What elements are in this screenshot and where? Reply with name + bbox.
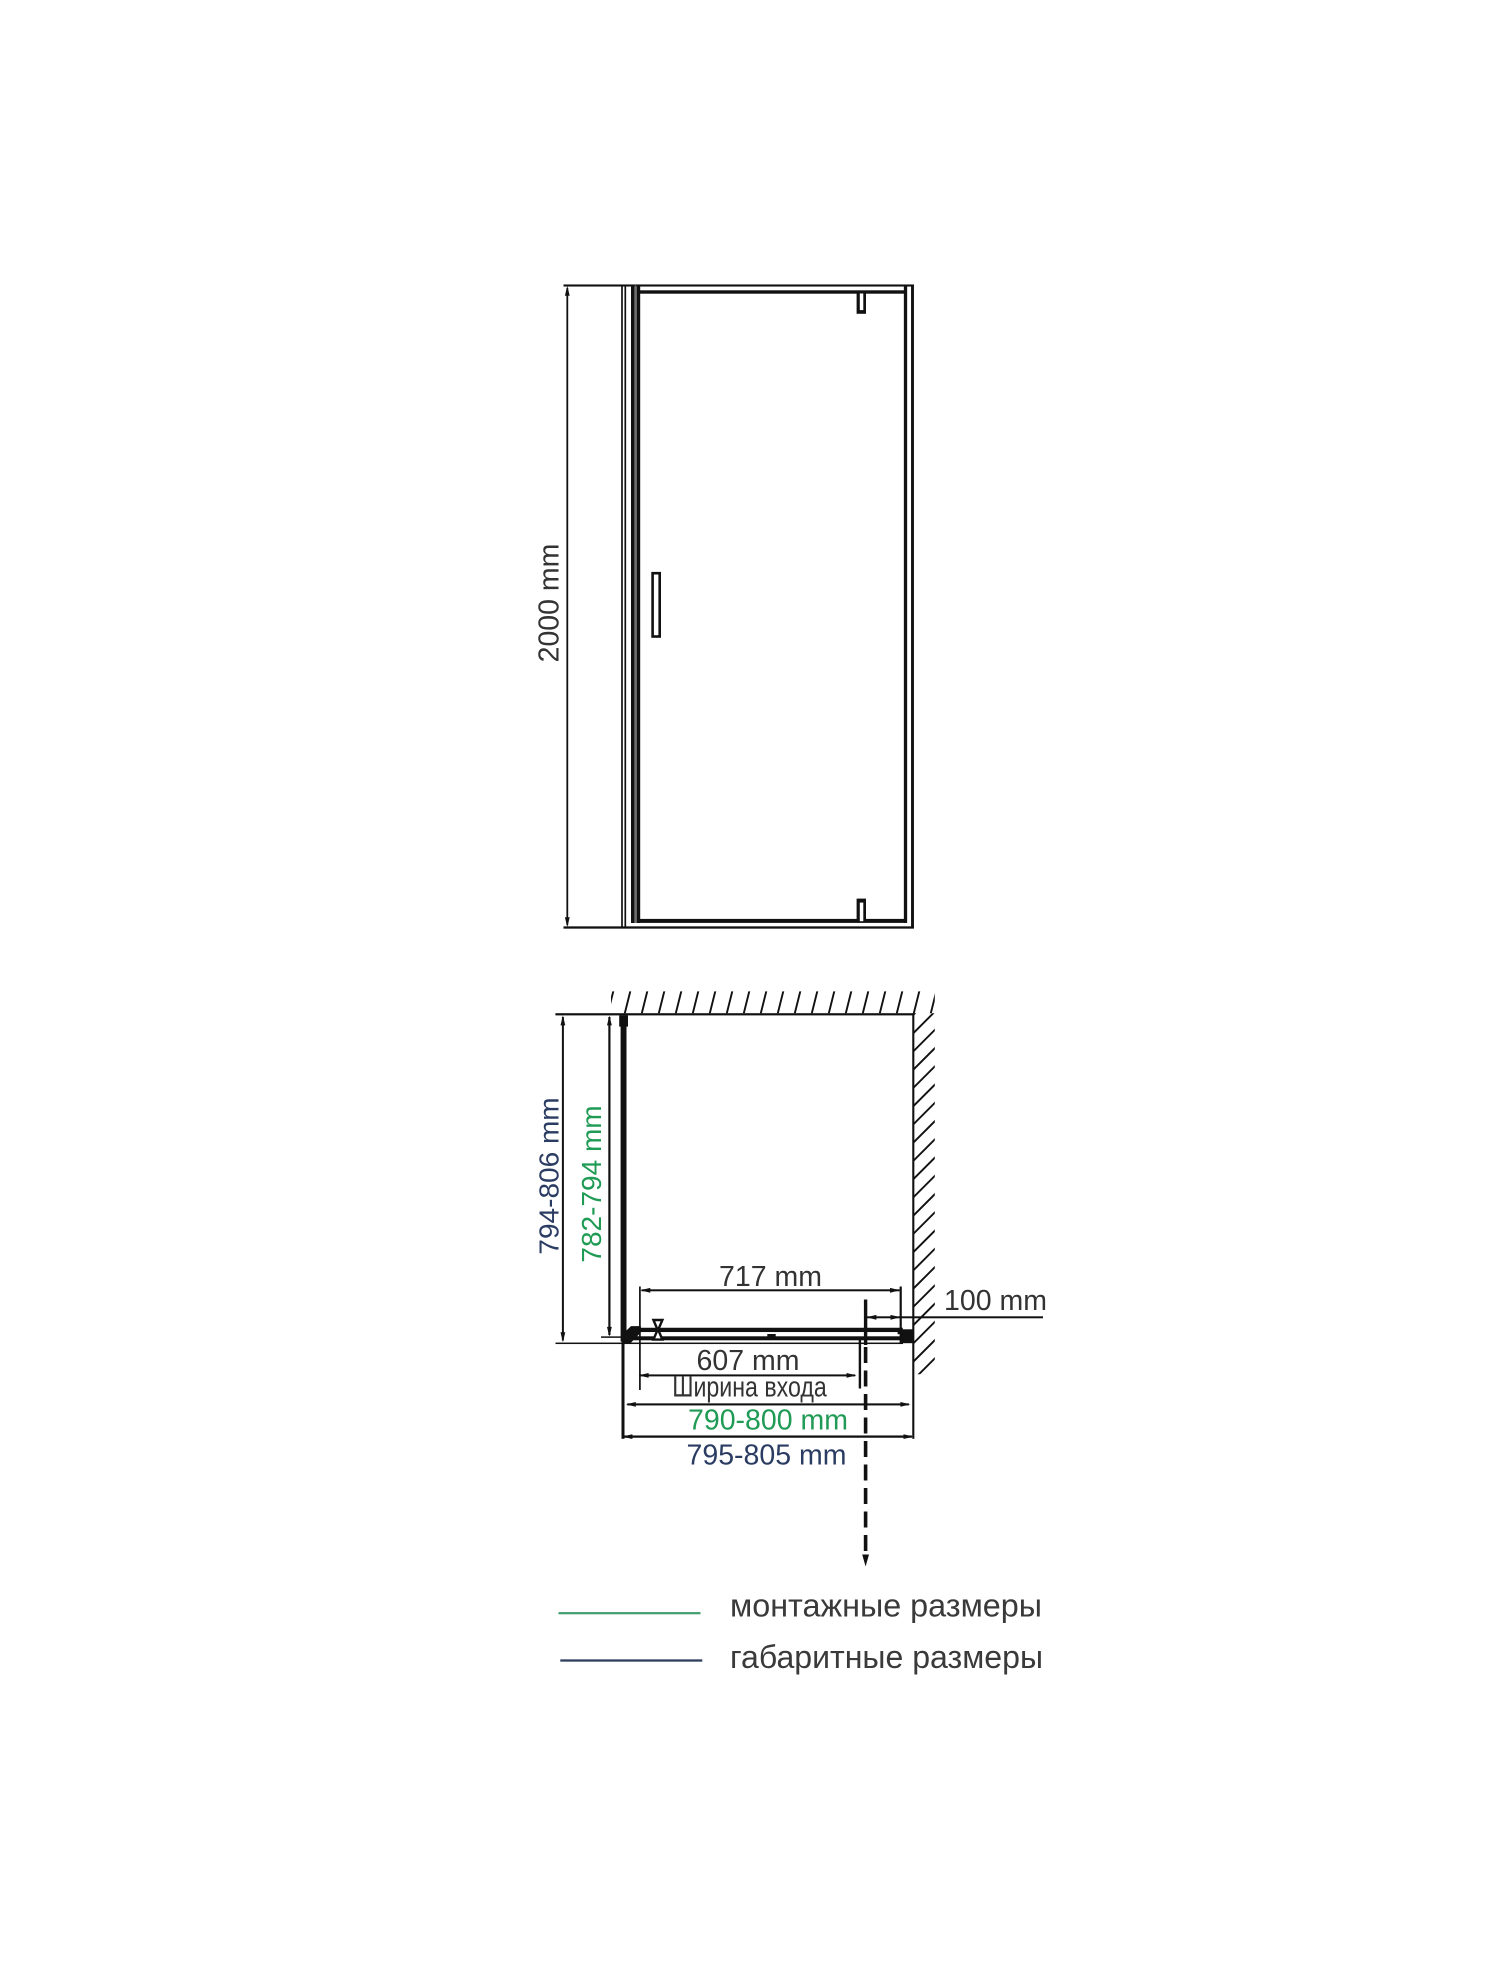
svg-text:габаритные размеры: габаритные размеры [730, 1639, 1043, 1675]
svg-text:790-800 mm: 790-800 mm [688, 1405, 848, 1437]
svg-text:782-794 mm: 782-794 mm [576, 1105, 607, 1262]
svg-text:монтажные размеры: монтажные размеры [730, 1588, 1042, 1624]
svg-text:2000 mm: 2000 mm [534, 544, 566, 663]
svg-text:Ширина входа: Ширина входа [672, 1371, 827, 1403]
svg-text:717 mm: 717 mm [719, 1261, 822, 1293]
svg-text:795-805 mm: 795-805 mm [687, 1440, 847, 1472]
svg-text:100 mm: 100 mm [944, 1285, 1047, 1317]
svg-text:794-806 mm: 794-806 mm [534, 1097, 565, 1254]
